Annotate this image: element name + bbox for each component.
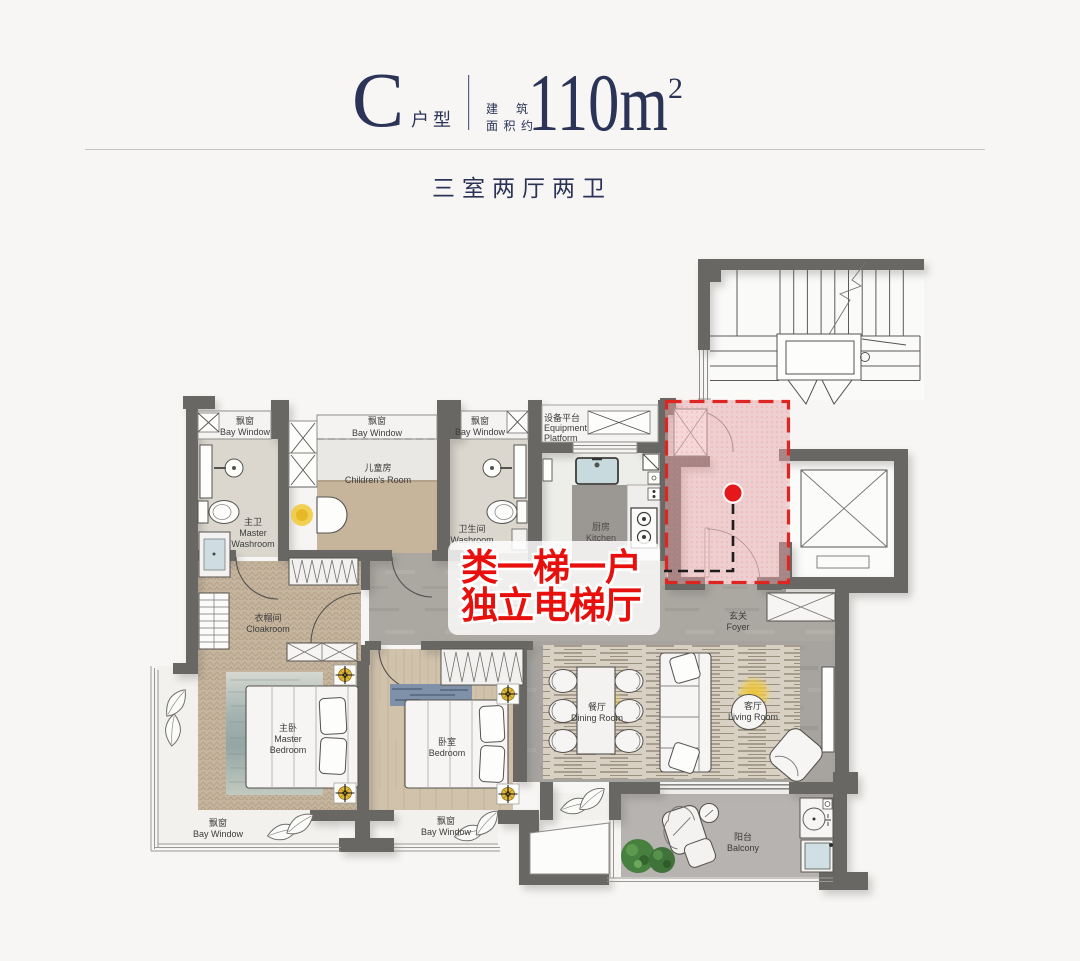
svg-text:玄关: 玄关: [729, 610, 747, 621]
svg-text:三室两厅两卫: 三室两厅两卫: [432, 175, 612, 201]
svg-text:Master: Master: [274, 734, 302, 744]
svg-text:Bedroom: Bedroom: [270, 745, 307, 755]
svg-text:Living Room: Living Room: [728, 712, 778, 722]
svg-text:C: C: [352, 56, 404, 143]
svg-text:独立电梯厅: 独立电梯厅: [461, 585, 641, 626]
svg-text:Equipment: Equipment: [544, 423, 588, 433]
svg-text:Bedroom: Bedroom: [429, 748, 466, 758]
svg-text:Washroom: Washroom: [231, 539, 274, 549]
svg-text:飘窗: 飘窗: [471, 415, 489, 426]
svg-text:类一梯一户: 类一梯一户: [461, 547, 641, 588]
svg-text:飘窗: 飘窗: [209, 817, 227, 828]
svg-text:设备平台: 设备平台: [544, 412, 580, 423]
svg-text:卧室: 卧室: [438, 736, 456, 747]
svg-text:客厅: 客厅: [744, 700, 762, 711]
svg-text:Master: Master: [239, 528, 267, 538]
svg-text:Cloakroom: Cloakroom: [246, 624, 290, 634]
svg-text:阳台: 阳台: [734, 831, 752, 842]
svg-text:Bay Window: Bay Window: [352, 428, 403, 438]
svg-text:厨房: 厨房: [592, 521, 610, 532]
svg-text:Balcony: Balcony: [727, 843, 760, 853]
svg-text:110m: 110m: [528, 57, 668, 148]
svg-text:Foyer: Foyer: [726, 622, 749, 632]
svg-text:餐厅: 餐厅: [588, 701, 606, 712]
svg-text:Bay Window: Bay Window: [455, 427, 506, 437]
svg-text:儿童房: 儿童房: [364, 462, 391, 473]
svg-text:户型: 户型: [411, 110, 455, 130]
svg-text:衣帽间: 衣帽间: [254, 612, 281, 623]
svg-text:飘窗: 飘窗: [368, 415, 386, 426]
svg-text:主卫: 主卫: [244, 516, 262, 527]
svg-text:Bay Window: Bay Window: [220, 427, 271, 437]
svg-text:2: 2: [668, 72, 683, 105]
svg-text:主卧: 主卧: [279, 722, 297, 733]
svg-text:卫生间: 卫生间: [458, 523, 485, 534]
svg-text:飘窗: 飘窗: [437, 815, 455, 826]
svg-text:Platform: Platform: [544, 433, 578, 443]
svg-text:Bay Window: Bay Window: [193, 829, 244, 839]
svg-text:Children's Room: Children's Room: [345, 475, 411, 485]
svg-text:Dining Room: Dining Room: [571, 713, 623, 723]
svg-text:Bay Window: Bay Window: [421, 827, 472, 837]
svg-text:飘窗: 飘窗: [236, 415, 254, 426]
